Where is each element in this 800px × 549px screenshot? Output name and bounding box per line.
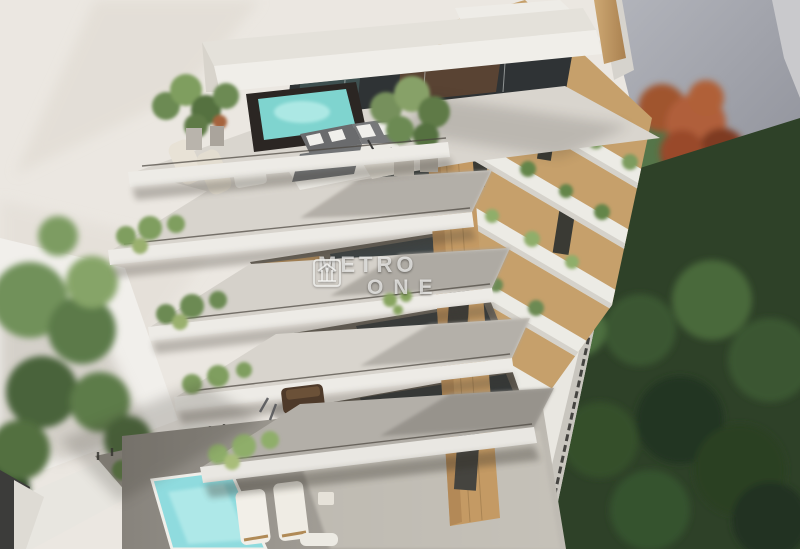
render-canvas: METRO ONE [0,0,800,549]
scene-render [0,0,800,549]
outdoor-sofa-ground [300,533,338,546]
